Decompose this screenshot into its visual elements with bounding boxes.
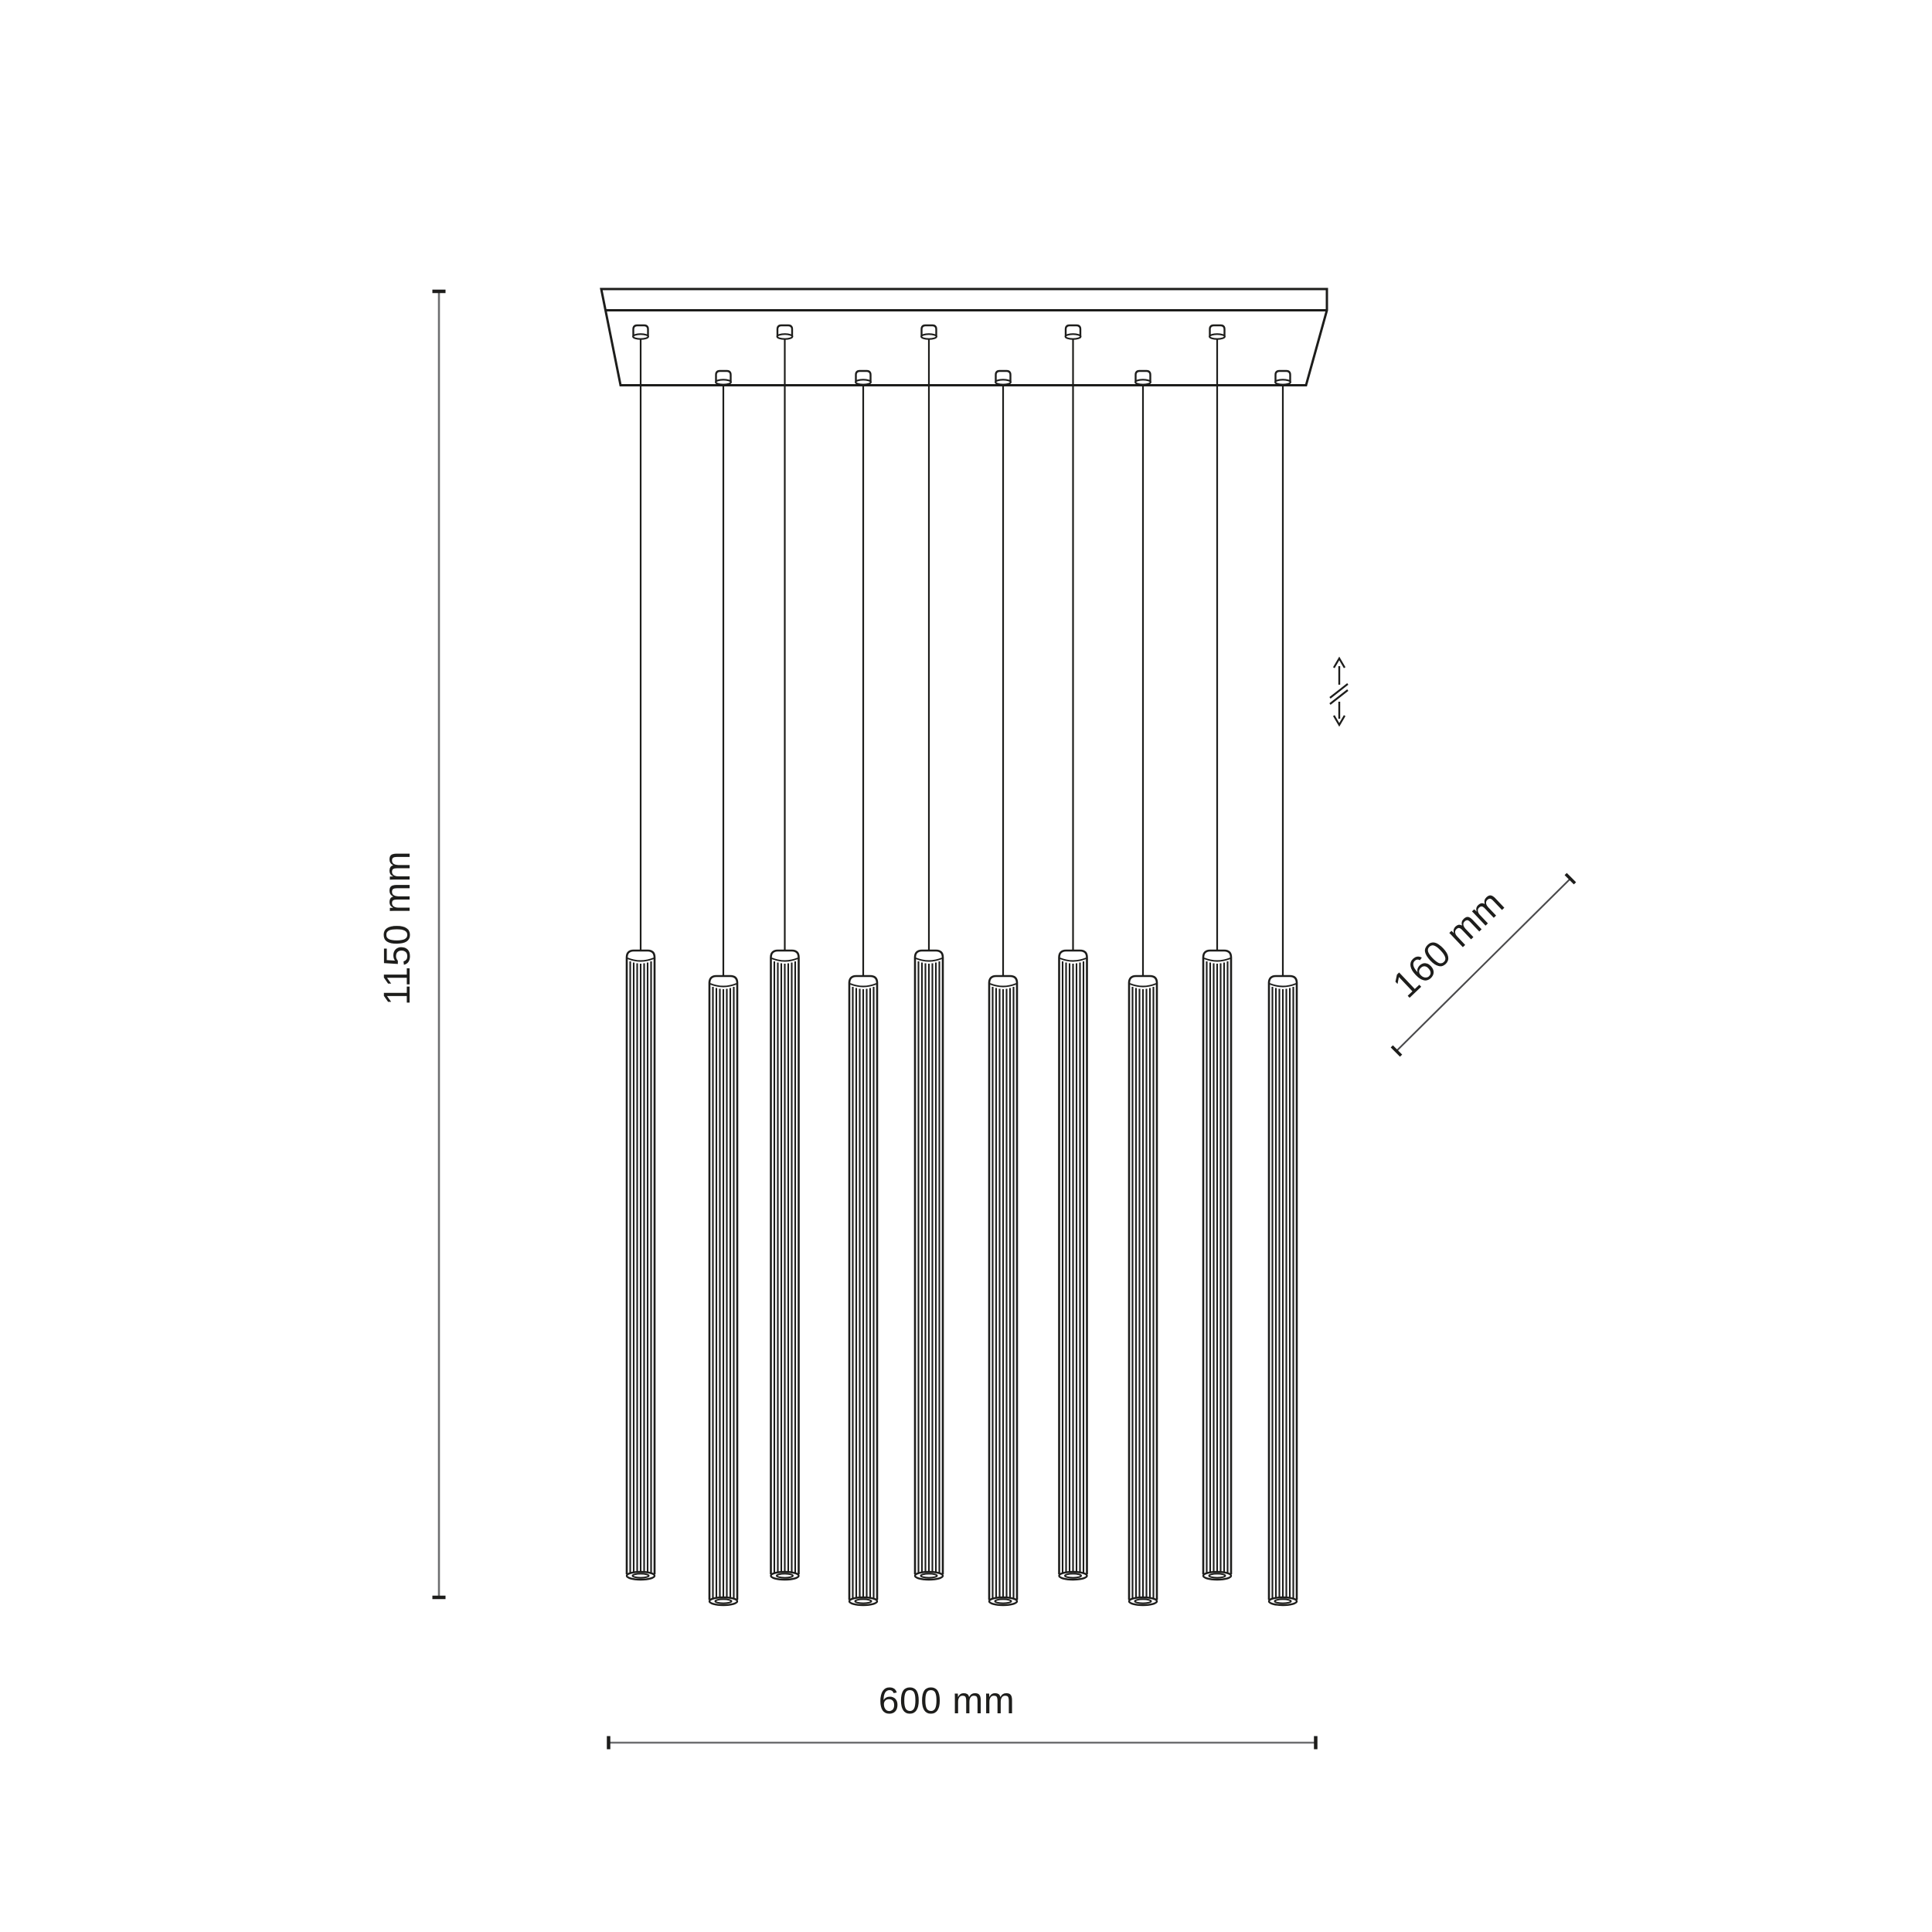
grommet (1066, 325, 1081, 339)
grommet (995, 371, 1011, 385)
tube-shade (709, 976, 737, 1605)
down-arrow (1334, 702, 1345, 725)
grommet (855, 371, 871, 385)
grommet (716, 371, 731, 385)
tube-shade (627, 951, 655, 1580)
height-adjustable-icon (1330, 658, 1348, 725)
tube-shade (915, 951, 943, 1580)
tube-shade (1129, 976, 1157, 1605)
tube-shade (849, 976, 877, 1605)
grommet (1275, 371, 1291, 385)
width-dimension-label: 600 mm (823, 1679, 1070, 1725)
tube-shade (1203, 951, 1231, 1580)
grommet (633, 325, 648, 339)
grommet (777, 325, 793, 339)
diagram-canvas: 1150 mm 600 mm 160 mm (0, 0, 1932, 1932)
break-slashes (1330, 684, 1348, 704)
tube-shade (1060, 951, 1087, 1580)
up-arrow (1334, 658, 1345, 685)
grommet (1209, 325, 1225, 339)
grommet (1135, 371, 1151, 385)
grommet (921, 325, 937, 339)
tube-shade (771, 951, 799, 1580)
tube-shades (627, 951, 1297, 1605)
suspension-cords (641, 336, 1283, 978)
height-dimension-label: 1150 mm (375, 804, 421, 1052)
tube-shade (1269, 976, 1297, 1605)
pendant-lamp-drawing (0, 0, 1932, 1932)
width-dimension (609, 1736, 1316, 1750)
height-dimension (433, 291, 446, 1597)
tube-shade (989, 976, 1017, 1605)
